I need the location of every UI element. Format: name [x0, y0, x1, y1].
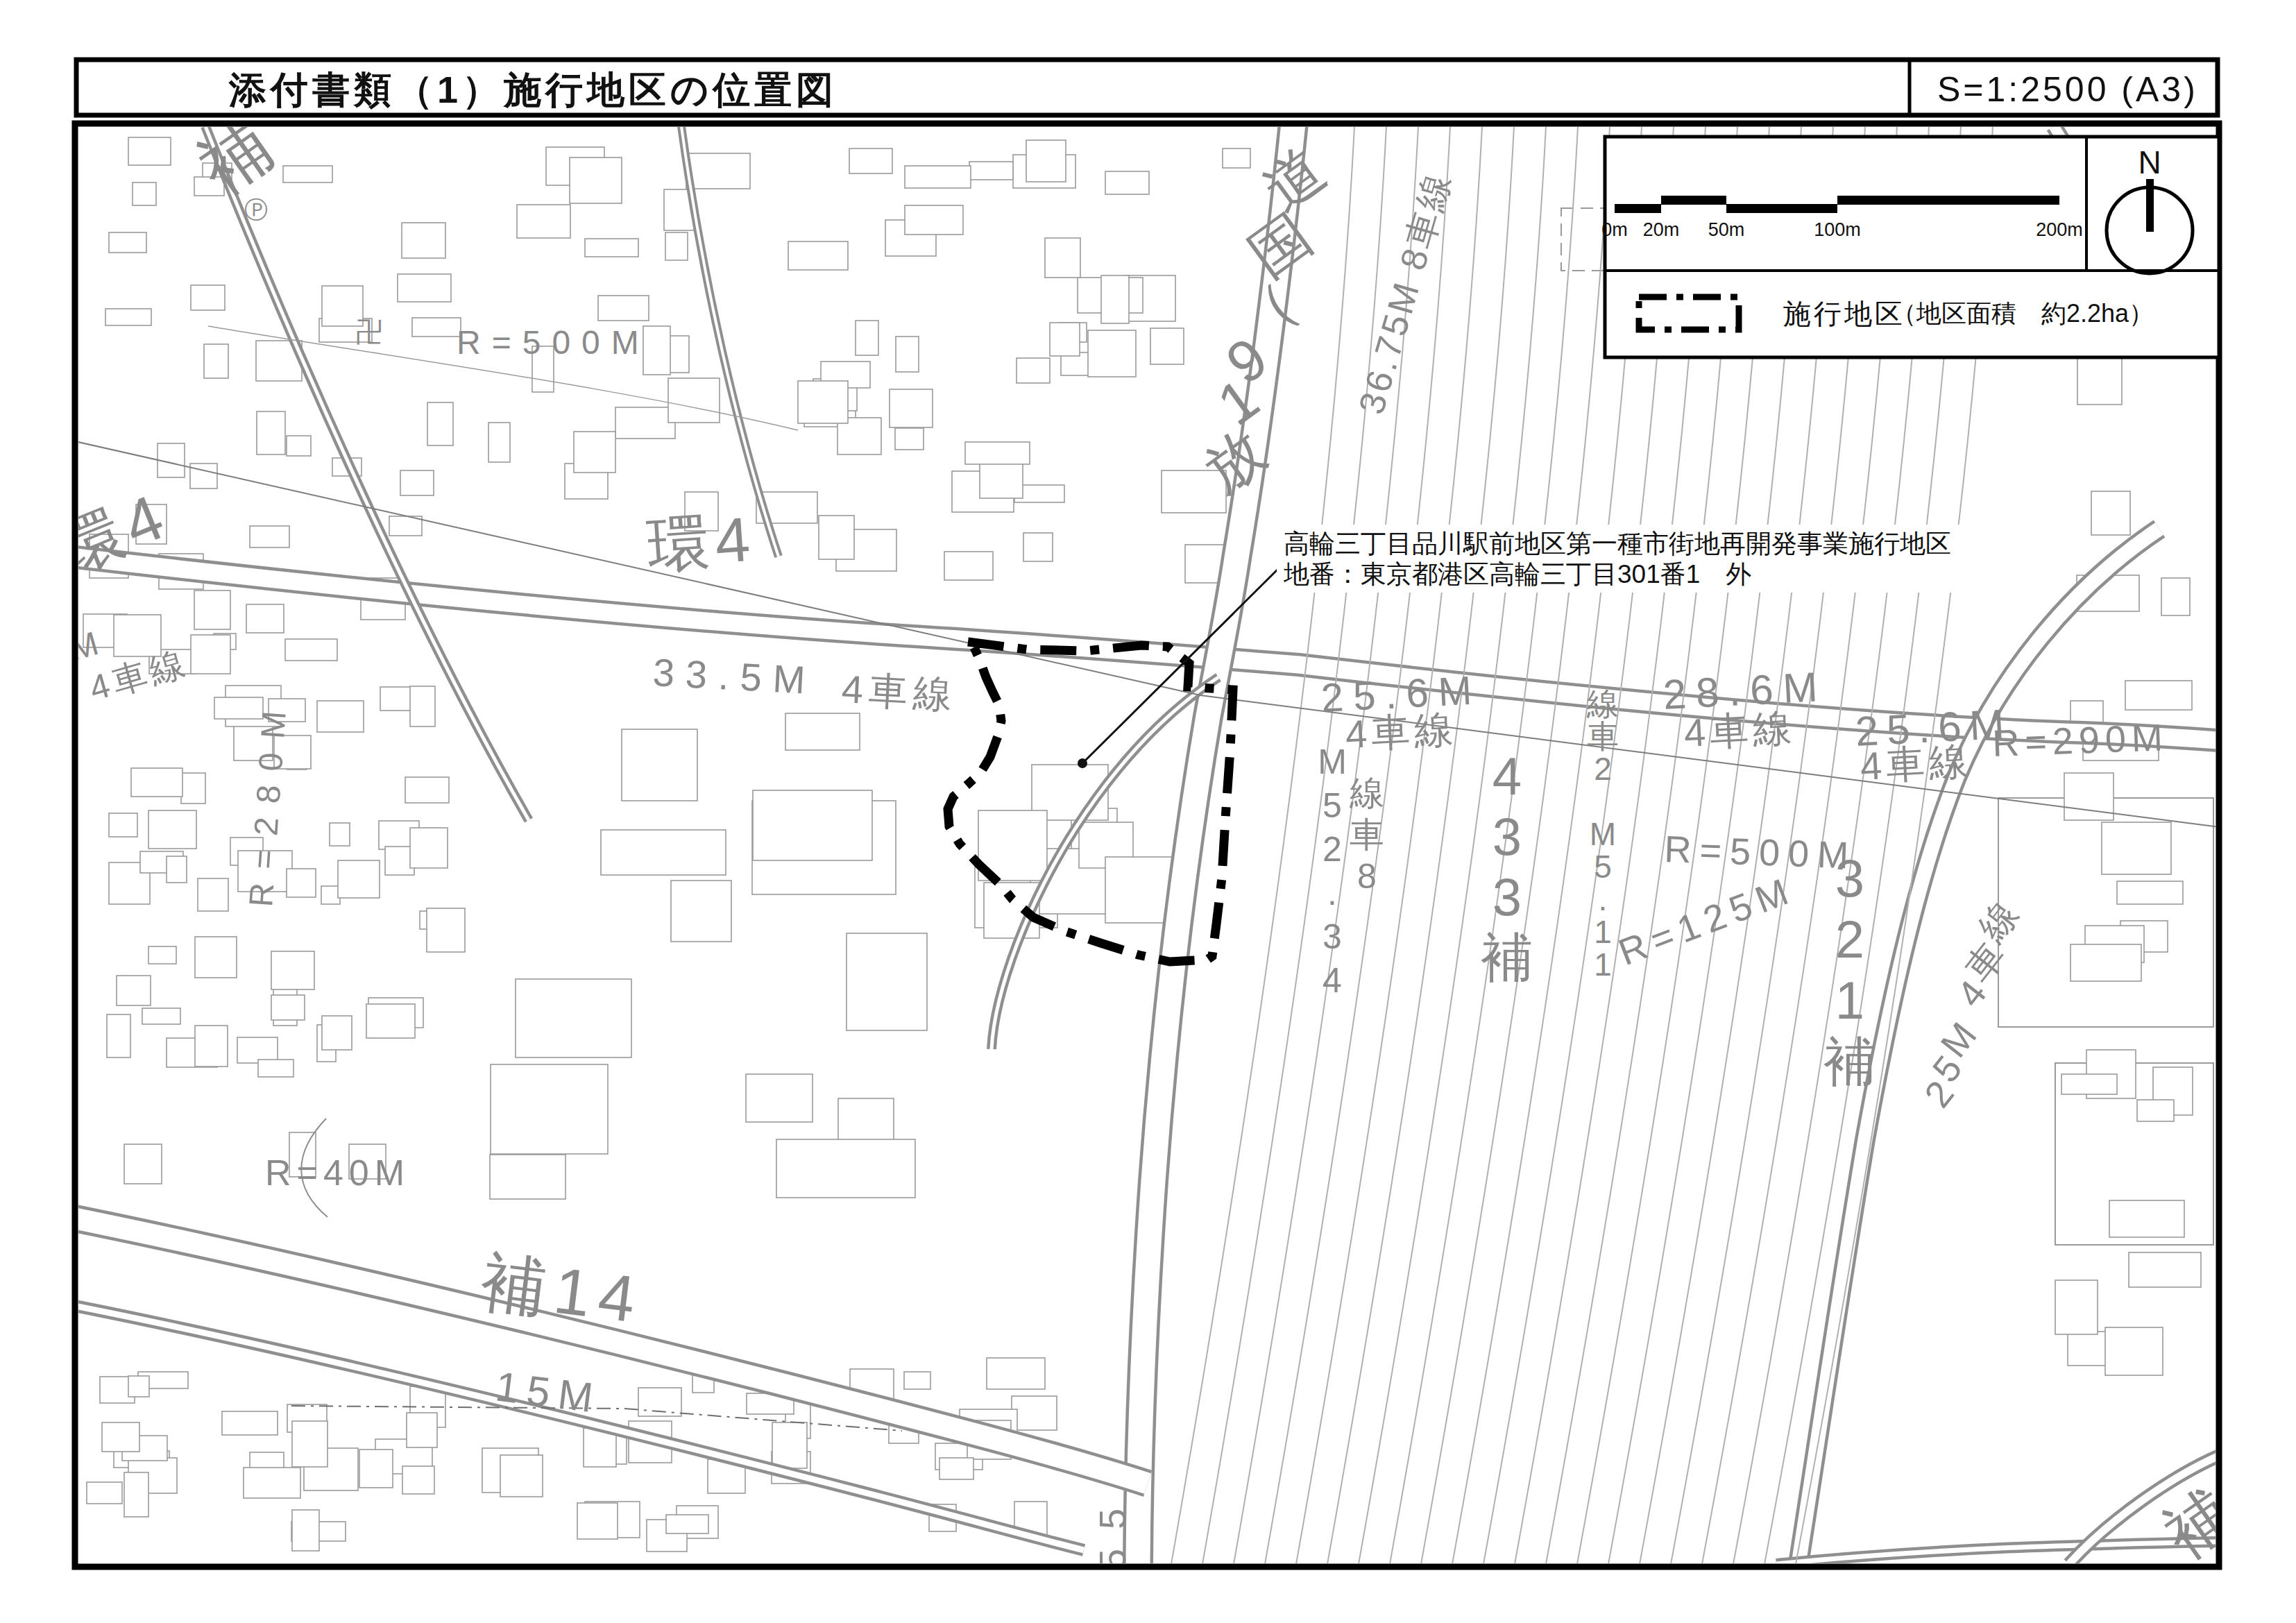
building-outline [195, 1026, 228, 1067]
building-outline [410, 828, 448, 868]
map-label-lanes4-a: 4車線 [1344, 707, 1458, 756]
building-outline [785, 713, 860, 750]
building-outline [124, 1472, 148, 1517]
building-outline [317, 701, 364, 732]
building-outline [109, 813, 137, 837]
building-outline [338, 860, 380, 898]
map-label-lanes4-b: 4車線 [1683, 706, 1796, 755]
map-label-ho123: 2 [1835, 910, 1864, 969]
building-outline [222, 1411, 278, 1435]
map-label-m115: M [1590, 816, 1616, 852]
building-outline [246, 604, 284, 633]
building-outline [117, 976, 151, 1005]
building-outline [292, 1510, 319, 1551]
building-outline [2070, 944, 2141, 981]
map-label-m4325: . [1327, 874, 1337, 912]
scale-tick-label-2: 50m [1708, 219, 1745, 240]
building-outline [598, 296, 649, 321]
building-outline [570, 158, 622, 203]
building-outline [102, 1422, 139, 1452]
building-outline [776, 1139, 915, 1198]
building-outline [1023, 533, 1053, 561]
building-outline [847, 933, 927, 1030]
building-outline [2117, 881, 2183, 904]
building-outline [204, 344, 228, 378]
building-outline [190, 464, 217, 488]
building-outline [107, 1014, 130, 1057]
building-outline [500, 1455, 543, 1497]
building-outline [191, 635, 230, 674]
building-outline [585, 239, 638, 257]
building-outline [181, 773, 205, 804]
map-label-r40: R=40M [265, 1153, 410, 1193]
building-outline [194, 590, 230, 629]
building-outline [148, 810, 196, 849]
building-outline [195, 937, 237, 978]
building-outline [601, 830, 726, 875]
building-outline [285, 639, 337, 661]
building-outline [124, 1144, 162, 1184]
building-outline [856, 321, 878, 355]
building-outline [292, 1421, 328, 1467]
building-outline [490, 1155, 566, 1199]
building-outline [258, 1060, 294, 1077]
building-outline [939, 1458, 973, 1479]
building-outline [890, 389, 933, 427]
building-outline [788, 241, 848, 270]
map-label-m335: 33.5M [652, 650, 817, 702]
map-label-ho334: 3 [1493, 807, 1522, 866]
map-label-ho334: 3 [1493, 867, 1522, 926]
map-label-ho334: 補 [1481, 928, 1533, 987]
building-outline [283, 166, 332, 182]
map-label-m115: 線 [1586, 686, 1619, 722]
map-label-ho334: 4 [1493, 747, 1522, 806]
map-label-manji-symbol: 卍 [355, 316, 383, 347]
scale-tick-label-4: 200m [2036, 219, 2083, 240]
map-label-kan4-center: 環4 [645, 504, 758, 581]
building-outline [128, 1376, 149, 1397]
building-outline [905, 166, 971, 188]
building-outline [167, 856, 187, 883]
building-outline [622, 729, 697, 801]
building-outline [402, 223, 445, 258]
header-bar: 添付書類（1）施行地区の位置図 S=1:2500 (A3) [76, 60, 2218, 115]
building-outline [2129, 1252, 2201, 1287]
annotation-line2: 地番：東京都港区高輪三丁目301番1 外 [1283, 560, 1751, 588]
map-label-m115: 車 [1587, 718, 1619, 754]
building-outline [271, 995, 305, 1020]
building-outline [615, 407, 675, 439]
map-label-ho123: 3 [1835, 849, 1864, 908]
building-outline [114, 615, 161, 656]
building-outline [1026, 140, 1066, 182]
building-outline [1045, 238, 1080, 278]
building-outline [250, 526, 289, 547]
building-outline [128, 137, 171, 165]
building-outline [896, 337, 919, 372]
building-outline [271, 951, 314, 989]
building-outline [330, 823, 350, 846]
building-outline [133, 182, 156, 205]
page-title: 添付書類（1）施行地区の位置図 [228, 69, 837, 110]
map-label-r500-mid: R=500M [1664, 828, 1858, 876]
building-outline [488, 423, 510, 462]
map-label-r290: R=290M [1991, 716, 2169, 764]
building-outline [798, 381, 848, 423]
map-label-m4325: 4 [1323, 961, 1342, 1000]
building-outline [322, 1016, 352, 1050]
map-label-lanes8: 車 [1350, 815, 1384, 854]
scale-text: S=1:2500 (A3) [1937, 70, 2198, 109]
building-outline [148, 946, 176, 964]
building-outline [1012, 1396, 1057, 1430]
building-outline [1223, 148, 1250, 168]
building-outline [905, 205, 963, 235]
building-outline [2055, 1280, 2098, 1334]
building-outline [380, 687, 411, 711]
building-outline [287, 436, 311, 456]
map-label-m115: . [1599, 881, 1608, 917]
map-label-m115: 5 [1594, 849, 1612, 885]
map-canvas: 添付書類（1）施行地区の位置図 S=1:2500 (A3) 補Ⓟ卍R=500M環… [0, 0, 2296, 1623]
map-label-m115: 1 [1594, 946, 1612, 983]
building-outline [904, 1372, 930, 1389]
building-outline [321, 886, 340, 904]
building-outline [359, 1450, 393, 1488]
annotation-leader-dot [1078, 758, 1087, 768]
building-outline [686, 153, 750, 189]
building-outline [666, 1515, 708, 1533]
scale-tick-label-0: 0m [1601, 219, 1628, 240]
map-label-m4325: 2 [1323, 830, 1342, 869]
building-outline [753, 790, 872, 860]
building-outline [671, 881, 731, 942]
building-outline [1101, 275, 1129, 323]
building-outline [366, 1004, 415, 1038]
map-label-m115: 2 [1594, 751, 1612, 787]
building-outline [142, 1008, 180, 1024]
district-area-label: （地区面積 約2.2ha） [1891, 299, 2154, 328]
map-label-lanes4-c: 4車線 [1859, 739, 1973, 788]
map-label-ho123: 補 [1823, 1032, 1876, 1091]
building-outline [2109, 1200, 2184, 1237]
building-outline [2077, 355, 2122, 405]
building-outline [1088, 330, 1136, 377]
map-label-lanes8: 線 [1349, 774, 1384, 813]
building-outline [2125, 681, 2192, 710]
building-outline [577, 1503, 618, 1539]
legend-box: 0m20m50m100m200m N 施行地区 （地区面積 約2.2ha） [1601, 137, 2219, 357]
scale-tick-label-3: 100m [1814, 219, 1861, 240]
building-outline [969, 162, 1013, 180]
building-outline [410, 686, 435, 726]
building-outline [1105, 171, 1149, 194]
building-outline [287, 869, 316, 897]
map-label-p-symbol: Ⓟ [244, 196, 268, 223]
building-outline [944, 552, 993, 580]
building-outline [427, 908, 465, 952]
building-outline [2105, 1327, 2163, 1375]
map-label-m4325: 3 [1323, 917, 1342, 956]
map-label-m115: 1 [1594, 914, 1612, 950]
building-outline [987, 1358, 1045, 1389]
building-outline [516, 979, 631, 1057]
building-outline [746, 1074, 813, 1122]
building-outline [2102, 822, 2171, 874]
north-needle [2146, 179, 2154, 232]
map-label-lanes8: 8 [1357, 857, 1377, 896]
map-label-m4325: M [1318, 742, 1347, 781]
building-outline [1017, 358, 1050, 383]
building-outline [131, 768, 182, 797]
map-label-ho123: 1 [1835, 971, 1864, 1030]
building-outline [257, 411, 285, 454]
building-outline [2161, 578, 2190, 615]
map-label-five5: 55 [1091, 1489, 1133, 1570]
district-label: 施行地区 [1783, 298, 1905, 329]
building-outline [2137, 1100, 2174, 1121]
north-label: N [2138, 144, 2161, 180]
building-outline [109, 232, 146, 253]
building-outline [191, 285, 225, 310]
building-outline [244, 1468, 300, 1498]
building-outline [665, 232, 688, 260]
building-outline [105, 309, 151, 325]
building-outline [2061, 1074, 2117, 1094]
building-outline [405, 777, 449, 803]
building-outline [668, 378, 720, 423]
building-outline [965, 442, 1030, 464]
building-outline [849, 148, 892, 173]
document-page: 添付書類（1）施行地区の位置図 S=1:2500 (A3) 補Ⓟ卍R=500M環… [0, 0, 2296, 1623]
building-outline [402, 1466, 434, 1494]
building-outline [2091, 491, 2130, 535]
building-outline [895, 428, 924, 450]
building-outline [87, 1482, 122, 1504]
building-outline [198, 878, 228, 911]
building-outline [517, 205, 570, 238]
map-label-lanes4-m335: 4車線 [840, 667, 958, 717]
building-outline [1150, 328, 1184, 364]
building-outline [400, 470, 434, 495]
building-outline [491, 1064, 608, 1154]
building-outline [772, 1422, 807, 1468]
annotation-line1: 高輪三丁目品川駅前地区第一種市街地再開発事業施行地区 [1284, 529, 1951, 558]
map-label-m4325: 5 [1323, 786, 1342, 825]
building-outline [574, 432, 615, 473]
building-outline [427, 402, 453, 445]
scale-tick-label-1: 20m [1643, 219, 1680, 240]
building-outline [398, 274, 451, 302]
map-label-r500-topleft: R=500M [457, 324, 650, 361]
building-outline [1050, 323, 1080, 356]
building-outline [819, 516, 854, 559]
building-outline [407, 1413, 437, 1447]
building-outline [412, 318, 461, 337]
